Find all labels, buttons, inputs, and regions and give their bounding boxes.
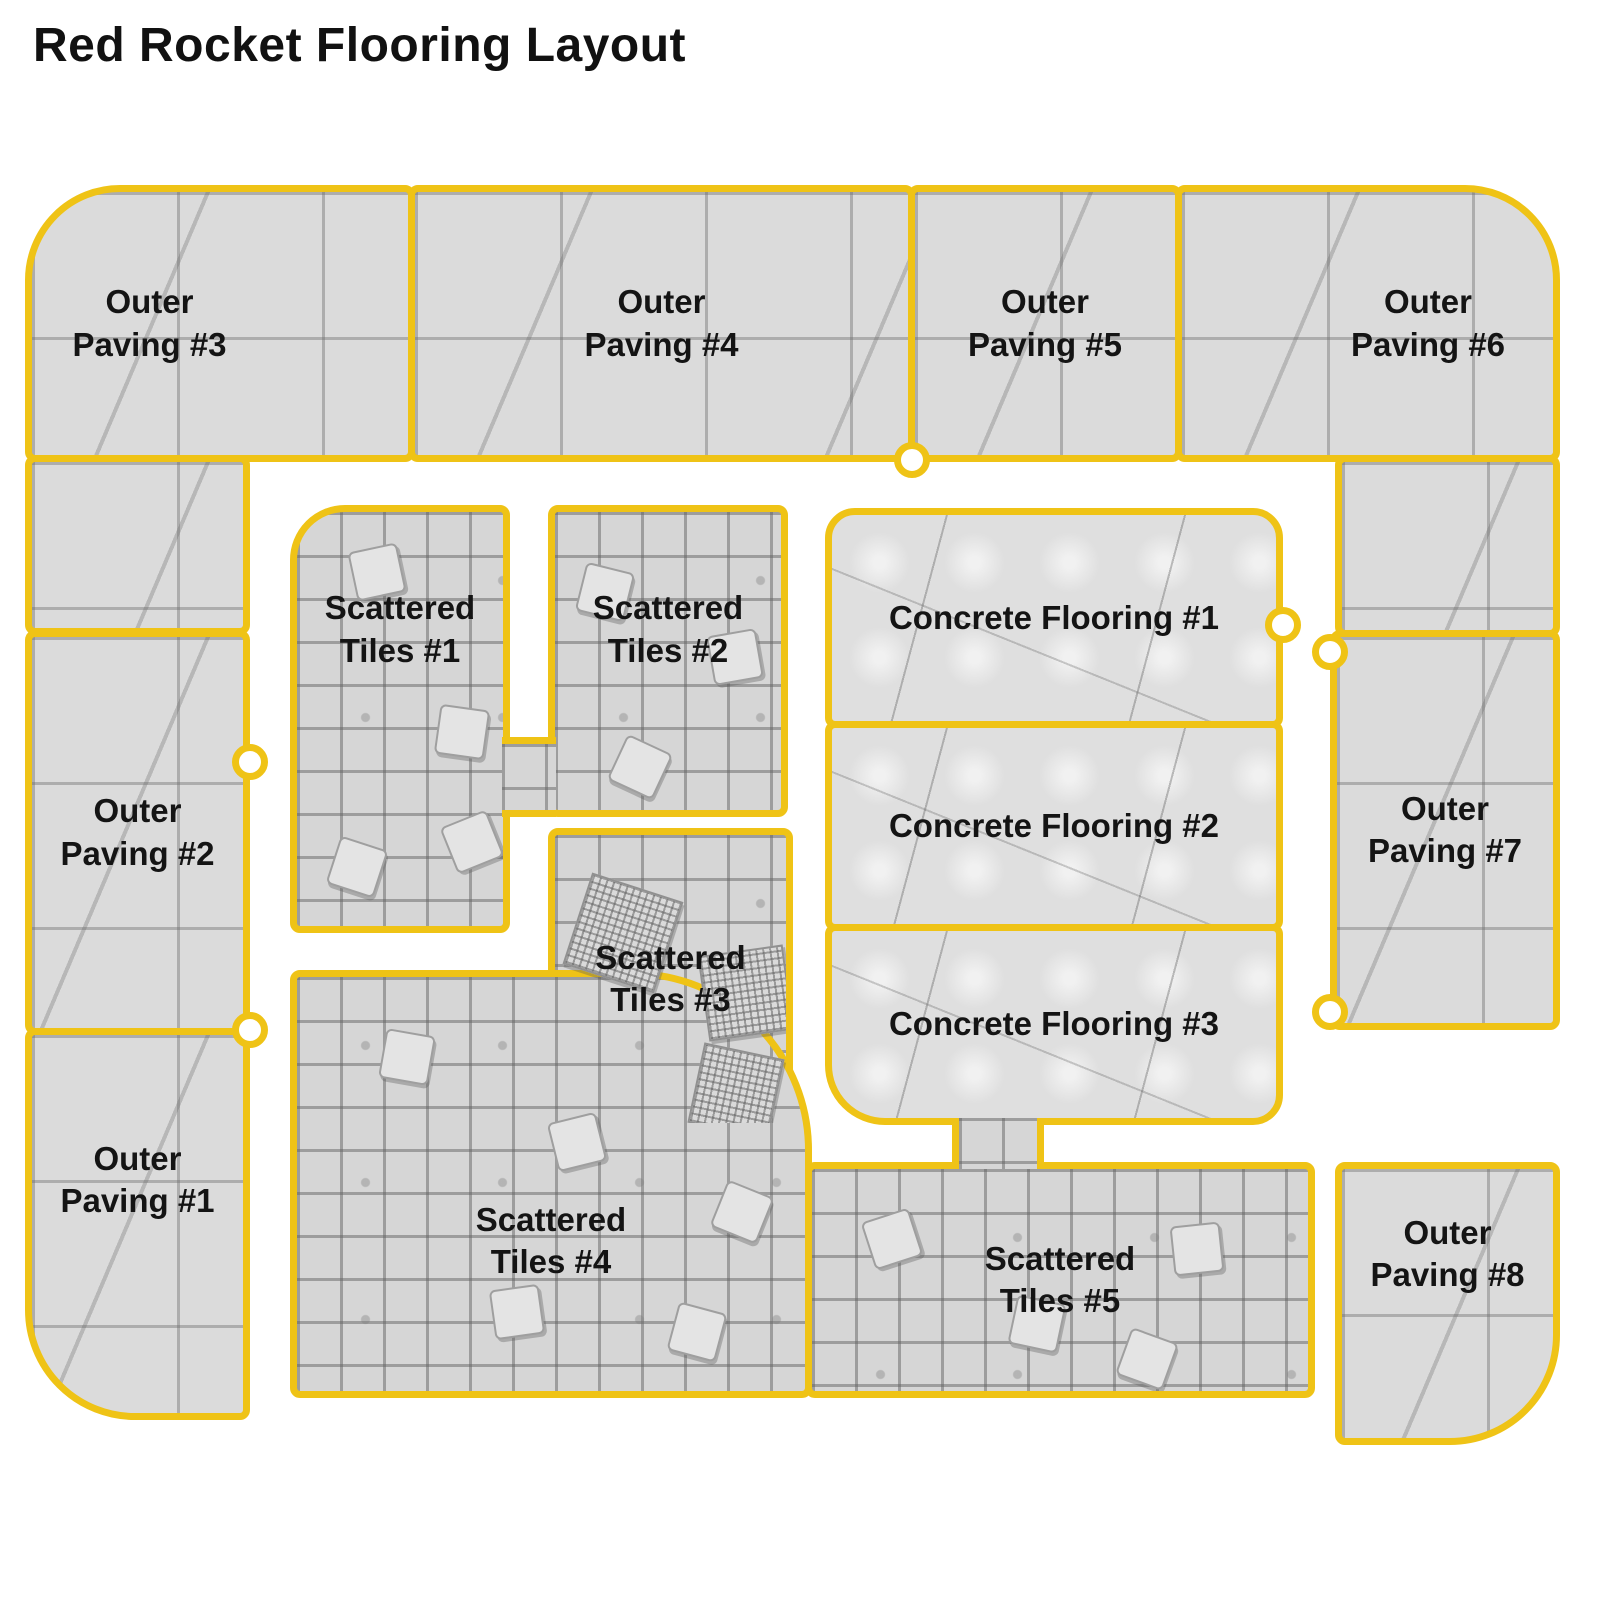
region-outer-paving-2: Outer Paving #2 — [25, 630, 250, 1035]
region-outer-paving-4: Outer Paving #4 — [408, 185, 915, 462]
region-label: Outer Paving #8 — [1342, 1169, 1553, 1339]
loose-tile-decoration — [378, 1028, 436, 1086]
notch-decoration — [1312, 634, 1348, 670]
region-label: Concrete Flooring #1 — [832, 515, 1276, 721]
notch-decoration — [1312, 994, 1348, 1030]
region-label: Concrete Flooring #2 — [832, 728, 1276, 924]
tile-connector — [952, 1118, 1044, 1169]
region-scattered-tiles-5: Scattered Tiles #5 — [805, 1162, 1315, 1398]
region-label: Scattered Tiles #3 — [555, 835, 786, 1123]
flooring-layout-diagram: Red Rocket Flooring Layout Outer Paving … — [0, 0, 1600, 1600]
region-outer-paving-8: Outer Paving #8 — [1335, 1162, 1560, 1445]
notch-decoration — [894, 442, 930, 478]
region-label: Scattered Tiles #2 — [555, 512, 781, 747]
page-title: Red Rocket Flooring Layout — [33, 18, 686, 73]
notch-decoration — [1265, 607, 1301, 643]
region-label: Scattered Tiles #4 — [297, 1091, 805, 1391]
region-concrete-flooring-3: Concrete Flooring #3 — [825, 924, 1283, 1125]
region-label: Outer Paving #5 — [915, 192, 1175, 455]
region-label: Scattered Tiles #1 — [297, 512, 503, 747]
region-scattered-tiles-2: Scattered Tiles #2 — [548, 505, 788, 817]
region-label: Outer Paving #1 — [32, 1035, 243, 1325]
region-label: Outer Paving #2 — [32, 637, 243, 1028]
region-label: Outer Paving #4 — [415, 192, 908, 455]
notch-decoration — [232, 1012, 268, 1048]
region-label: Concrete Flooring #3 — [832, 931, 1276, 1118]
region-outer-paving-7: Outer Paving #7 — [1330, 630, 1560, 1030]
notch-decoration — [232, 744, 268, 780]
region-concrete-flooring-2: Concrete Flooring #2 — [825, 721, 1283, 931]
region-scattered-tiles-3: Scattered Tiles #3 — [548, 828, 793, 1130]
region-outer-paving-6: Outer Paving #6 — [1175, 185, 1560, 462]
region-outer-paving-3: Outer Paving #3 — [25, 185, 415, 462]
region-outer-paving-1: Outer Paving #1 — [25, 1028, 250, 1420]
region-scattered-tiles-1: Scattered Tiles #1 — [290, 505, 510, 933]
loose-tile-decoration — [325, 835, 388, 898]
region-concrete-flooring-1: Concrete Flooring #1 — [825, 508, 1283, 728]
region-label: Scattered Tiles #5 — [812, 1169, 1308, 1391]
region-label: Outer Paving #3 — [32, 192, 267, 455]
tile-connector — [502, 737, 556, 817]
region-label: Outer Paving #7 — [1337, 637, 1553, 1023]
region-outer-paving-5: Outer Paving #5 — [908, 185, 1182, 462]
loose-tile-decoration — [439, 809, 504, 874]
region-outer-paving-6-extension — [1335, 455, 1560, 637]
region-outer-paving-3-extension — [25, 455, 250, 635]
region-label: Outer Paving #6 — [1303, 192, 1553, 455]
